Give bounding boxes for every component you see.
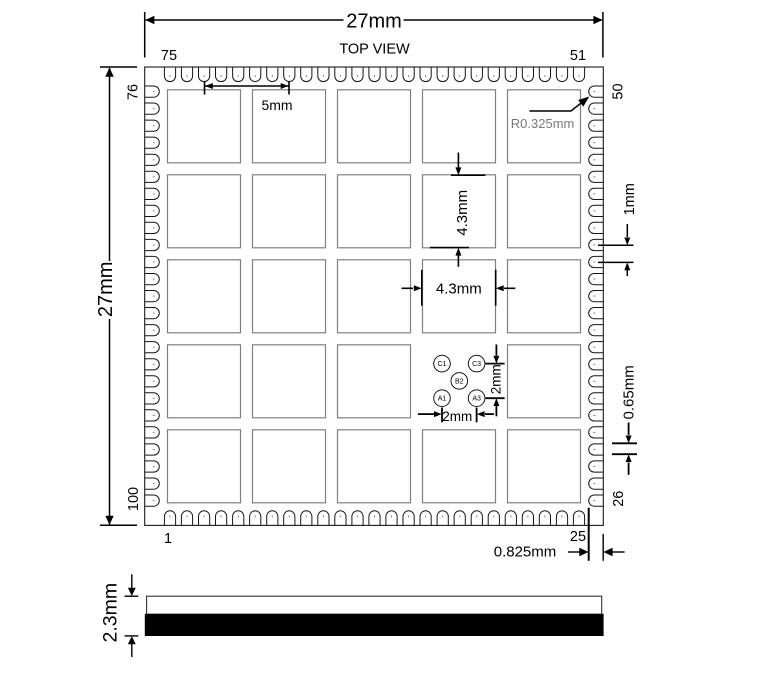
svg-text:0.65mm: 0.65mm (621, 365, 638, 419)
svg-text:1mm: 1mm (622, 183, 638, 215)
svg-text:2mm: 2mm (488, 364, 503, 394)
svg-text:100: 100 (126, 487, 142, 511)
svg-text:4.3mm: 4.3mm (436, 280, 482, 297)
svg-text:75: 75 (161, 48, 177, 64)
svg-text:1: 1 (164, 531, 172, 547)
svg-text:R0.325mm: R0.325mm (511, 116, 575, 131)
svg-text:4.3mm: 4.3mm (454, 190, 471, 236)
svg-text:27mm: 27mm (95, 262, 117, 318)
svg-text:B2: B2 (455, 378, 464, 385)
svg-text:26: 26 (611, 491, 627, 507)
svg-text:51: 51 (570, 48, 586, 64)
svg-text:5mm: 5mm (261, 97, 292, 113)
svg-text:A3: A3 (472, 396, 481, 403)
svg-text:76: 76 (126, 84, 142, 100)
svg-text:27mm: 27mm (346, 11, 402, 33)
svg-text:50: 50 (610, 83, 626, 99)
svg-text:2.3mm: 2.3mm (100, 583, 122, 643)
svg-text:A1: A1 (438, 396, 447, 403)
svg-text:0.825mm: 0.825mm (494, 544, 557, 561)
svg-text:C1: C1 (438, 361, 447, 368)
svg-text:TOP VIEW: TOP VIEW (339, 41, 410, 57)
svg-text:2mm: 2mm (442, 409, 472, 424)
svg-text:25: 25 (570, 529, 586, 545)
svg-text:C3: C3 (472, 361, 481, 368)
